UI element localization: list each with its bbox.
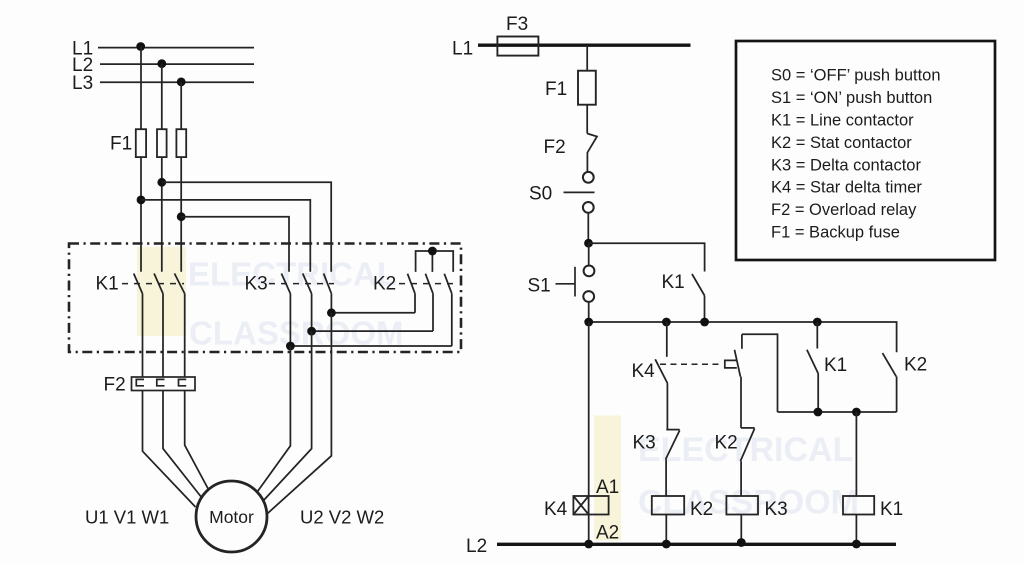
- svg-text:K1 = Line contactor: K1 = Line contactor: [771, 112, 914, 130]
- svg-text:K1: K1: [662, 272, 685, 293]
- svg-text:F3: F3: [506, 14, 528, 35]
- svg-text:K1: K1: [880, 499, 903, 520]
- svg-text:K2: K2: [904, 355, 927, 376]
- svg-text:S1: S1: [528, 276, 551, 297]
- svg-text:A1: A1: [596, 477, 619, 498]
- svg-text:S0: S0: [529, 184, 552, 205]
- svg-text:S1 = ‘ON’ push button: S1 = ‘ON’ push button: [771, 89, 932, 107]
- svg-text:F2: F2: [544, 137, 566, 158]
- svg-text:F1 = Backup fuse: F1 = Backup fuse: [771, 224, 900, 242]
- svg-text:Motor: Motor: [209, 507, 254, 527]
- svg-text:K4 = Star delta timer: K4 = Star delta timer: [771, 179, 922, 197]
- svg-text:K4: K4: [544, 499, 568, 520]
- svg-text:K3: K3: [245, 274, 268, 295]
- svg-text:F2 = Overload relay: F2 = Overload relay: [771, 201, 917, 219]
- svg-text:A2: A2: [596, 523, 619, 544]
- svg-text:K4: K4: [632, 361, 656, 382]
- svg-text:ELECTRICAL: ELECTRICAL: [188, 256, 397, 293]
- svg-text:K2: K2: [373, 274, 396, 295]
- svg-text:L2: L2: [466, 536, 487, 557]
- svg-text:L3: L3: [72, 73, 93, 94]
- svg-text:K3: K3: [633, 433, 656, 454]
- svg-text:S0 = ‘OFF’ push button: S0 = ‘OFF’ push button: [771, 67, 941, 85]
- svg-text:K2 = Stat contactor: K2 = Stat contactor: [771, 134, 912, 152]
- svg-text:K2: K2: [715, 433, 738, 454]
- svg-text:F1: F1: [110, 134, 132, 155]
- svg-text:L1: L1: [452, 39, 473, 60]
- svg-text:U2 V2 W2: U2 V2 W2: [300, 507, 384, 528]
- svg-text:K1: K1: [96, 274, 119, 295]
- svg-text:K3: K3: [765, 499, 788, 520]
- svg-text:K1: K1: [824, 355, 847, 376]
- svg-text:K3 = Delta contactor: K3 = Delta contactor: [771, 156, 921, 174]
- svg-text:K2: K2: [690, 499, 713, 520]
- svg-text:CLASSROOM: CLASSROOM: [638, 484, 859, 522]
- svg-text:U1 V1 W1: U1 V1 W1: [85, 507, 169, 528]
- svg-text:F2: F2: [104, 375, 126, 396]
- svg-text:F1: F1: [545, 79, 567, 100]
